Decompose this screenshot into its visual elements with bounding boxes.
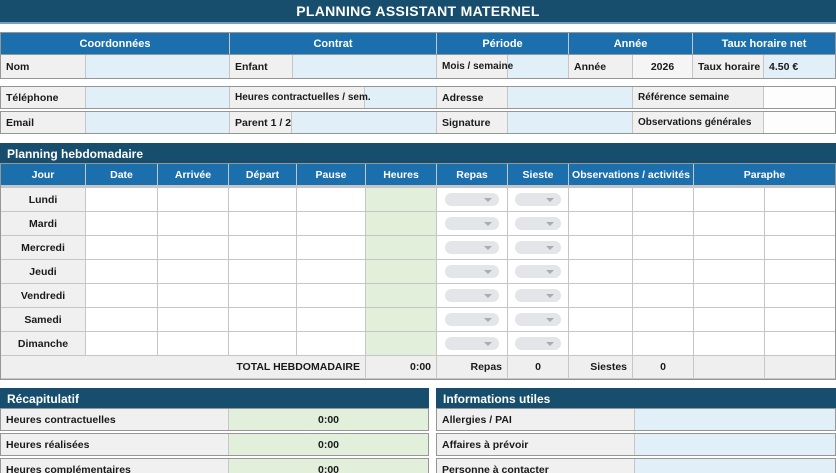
chevron-down-icon: [546, 246, 554, 250]
chevron-down-icon: [484, 342, 492, 346]
recap-row: Heures contractuelles 0:00: [0, 408, 429, 431]
sieste-dropdown[interactable]: [508, 236, 568, 259]
observation-cell-1[interactable]: [569, 260, 632, 283]
observation-cell-1[interactable]: [569, 284, 632, 307]
arrivee-cell[interactable]: [158, 260, 228, 283]
arrivee-cell[interactable]: [158, 308, 228, 331]
repas-dropdown-pill[interactable]: [445, 265, 500, 278]
chevron-down-icon: [484, 222, 492, 226]
paraphe-cell-1[interactable]: [694, 260, 764, 283]
observation-cell-2[interactable]: [633, 236, 693, 259]
signature-label: Signature: [437, 112, 507, 133]
adresse-label: Adresse: [437, 87, 507, 108]
paraphe-cell-1[interactable]: [694, 308, 764, 331]
observation-cell-2[interactable]: [633, 332, 693, 355]
observation-cell-1[interactable]: [569, 332, 632, 355]
parent-input[interactable]: [292, 112, 436, 133]
paraphe-cell-1[interactable]: [694, 212, 764, 235]
repas-dropdown[interactable]: [437, 308, 507, 331]
observation-cell-2[interactable]: [633, 188, 693, 211]
section-header-periode: Période: [437, 33, 568, 54]
allergies-input[interactable]: [635, 409, 835, 430]
date-cell[interactable]: [86, 284, 157, 307]
sieste-dropdown[interactable]: [508, 308, 568, 331]
heures-contractuelles-recap-value: 0:00: [229, 409, 428, 430]
date-cell[interactable]: [86, 332, 157, 355]
repas-dropdown-pill[interactable]: [445, 241, 500, 254]
heures-complementaires-label: Heures complémentaires: [1, 459, 228, 473]
heures-realisees-label: Heures réalisées: [1, 434, 228, 455]
paraphe-cell-2[interactable]: [765, 308, 835, 331]
depart-cell[interactable]: [229, 332, 296, 355]
recap-section-title: Récapitulatif: [7, 392, 79, 406]
arrivee-cell[interactable]: [158, 284, 228, 307]
col-header-paraphe: Paraphe: [694, 164, 835, 185]
sieste-dropdown[interactable]: [508, 260, 568, 283]
depart-cell[interactable]: [229, 212, 296, 235]
observation-cell-1[interactable]: [569, 308, 632, 331]
mois-semaine-input[interactable]: [508, 55, 568, 78]
chevron-down-icon: [484, 198, 492, 202]
email-input[interactable]: [86, 112, 229, 133]
heures-cell: [366, 308, 436, 331]
depart-cell[interactable]: [229, 308, 296, 331]
repas-dropdown-pill[interactable]: [445, 337, 500, 350]
arrivee-cell[interactable]: [158, 236, 228, 259]
date-cell[interactable]: [86, 236, 157, 259]
col-header-sieste: Sieste: [508, 164, 568, 185]
observation-cell-2[interactable]: [633, 308, 693, 331]
pause-cell[interactable]: [297, 236, 365, 259]
email-label: Email: [1, 112, 85, 133]
day-label-cell: Dimanche: [1, 332, 85, 355]
repas-dropdown[interactable]: [437, 260, 507, 283]
sieste-dropdown[interactable]: [508, 332, 568, 355]
info-row: Affaires à prévoir: [436, 433, 836, 456]
infos-section-title: Informations utiles: [443, 392, 550, 406]
col-header-heures: Heures: [366, 164, 436, 185]
date-cell[interactable]: [86, 308, 157, 331]
planning-section-title: Planning hebdomadaire: [7, 147, 143, 161]
sieste-dropdown-pill[interactable]: [515, 265, 562, 278]
repas-dropdown-pill[interactable]: [445, 289, 500, 302]
planning-table: Jour Date Arrivée Départ Pause Heures Re…: [0, 163, 836, 380]
personne-contacter-label: Personne à contacter: [437, 459, 634, 473]
arrivee-cell[interactable]: [158, 188, 228, 211]
heures-cell: [366, 332, 436, 355]
parent-label: Parent 1 / 2: [230, 112, 291, 133]
total-siestes-label: Siestes: [569, 356, 632, 378]
day-label-cell: Lundi: [1, 188, 85, 211]
infos-section-bar: Informations utiles: [436, 388, 836, 409]
recap-section: Récapitulatif Heures contractuelles 0:00…: [0, 388, 429, 473]
repas-dropdown[interactable]: [437, 188, 507, 211]
pause-cell[interactable]: [297, 212, 365, 235]
col-header-pause: Pause: [297, 164, 365, 185]
pause-cell[interactable]: [297, 260, 365, 283]
repas-dropdown[interactable]: [437, 284, 507, 307]
depart-cell[interactable]: [229, 188, 296, 211]
day-label-cell: Samedi: [1, 308, 85, 331]
affaires-label: Affaires à prévoir: [437, 434, 634, 455]
repas-dropdown[interactable]: [437, 212, 507, 235]
chevron-down-icon: [484, 294, 492, 298]
page-title: PLANNING ASSISTANT MATERNEL: [296, 3, 540, 19]
sieste-dropdown-pill[interactable]: [515, 289, 562, 302]
paraphe-cell-1[interactable]: [694, 188, 764, 211]
recap-row: Heures réalisées 0:00: [0, 433, 429, 456]
observation-cell-2[interactable]: [633, 260, 693, 283]
top-section-headers: Coordonnées Contrat Période Année Taux h…: [0, 32, 836, 55]
mois-semaine-label: Mois / semaine: [437, 55, 507, 78]
section-header-coordonnees: Coordonnées: [1, 33, 229, 54]
chevron-down-icon: [546, 270, 554, 274]
col-header-jour: Jour: [1, 164, 85, 185]
arrivee-cell[interactable]: [158, 212, 228, 235]
sieste-dropdown[interactable]: [508, 188, 568, 211]
total-empty-cell-2: [765, 356, 835, 378]
signature-input[interactable]: [508, 112, 632, 133]
heures-realisees-value: 0:00: [229, 434, 428, 455]
paraphe-cell-2[interactable]: [765, 188, 835, 211]
annee-label: Année: [569, 55, 632, 78]
depart-cell[interactable]: [229, 284, 296, 307]
email-row: Email Parent 1 / 2 Signature Observation…: [0, 111, 836, 134]
nom-label: Nom: [1, 55, 85, 78]
chevron-down-icon: [484, 318, 492, 322]
paraphe-cell-1[interactable]: [694, 284, 764, 307]
telephone-input[interactable]: [86, 87, 229, 108]
observation-cell-1[interactable]: [569, 212, 632, 235]
pause-cell[interactable]: [297, 284, 365, 307]
enfant-input[interactable]: [293, 55, 436, 78]
section-header-taux: Taux horaire net: [693, 33, 835, 54]
sieste-dropdown-pill[interactable]: [515, 241, 562, 254]
title-bar: PLANNING ASSISTANT MATERNEL: [0, 0, 836, 24]
repas-dropdown-pill[interactable]: [445, 217, 500, 230]
annee-value[interactable]: 2026: [633, 55, 692, 78]
heures-complementaires-value: 0:00: [229, 459, 428, 473]
section-header-contrat: Contrat: [230, 33, 436, 54]
observation-cell-1[interactable]: [569, 188, 632, 211]
sieste-dropdown-pill[interactable]: [515, 337, 562, 350]
sieste-dropdown[interactable]: [508, 284, 568, 307]
telephone-label: Téléphone: [1, 87, 85, 108]
info-row: Allergies / PAI: [436, 408, 836, 431]
total-repas-label: Repas: [437, 356, 507, 378]
paraphe-cell-2[interactable]: [765, 332, 835, 355]
col-header-depart: Départ: [229, 164, 296, 185]
repas-dropdown-pill[interactable]: [445, 193, 500, 206]
chevron-down-icon: [546, 198, 554, 202]
col-header-date: Date: [86, 164, 157, 185]
date-cell[interactable]: [86, 212, 157, 235]
chevron-down-icon: [546, 222, 554, 226]
heures-contractuelles-recap-label: Heures contractuelles: [1, 409, 228, 430]
depart-cell[interactable]: [229, 260, 296, 283]
reference-semaine-input[interactable]: [764, 87, 835, 108]
enfant-label: Enfant: [230, 55, 292, 78]
chevron-down-icon: [484, 246, 492, 250]
arrivee-cell[interactable]: [158, 332, 228, 355]
chevron-down-icon: [546, 318, 554, 322]
chevron-down-icon: [484, 270, 492, 274]
heures-cell: [366, 236, 436, 259]
total-heures-value: 0:00: [366, 356, 436, 378]
sieste-dropdown[interactable]: [508, 212, 568, 235]
paraphe-cell-1[interactable]: [694, 332, 764, 355]
repas-dropdown[interactable]: [437, 332, 507, 355]
day-label-cell: Jeudi: [1, 260, 85, 283]
taux-horaire-value[interactable]: 4.50 €: [764, 55, 835, 78]
planning-sheet: PLANNING ASSISTANT MATERNEL Coordonnées …: [0, 0, 836, 473]
observations-generales-label: Observations générales: [633, 112, 763, 133]
date-cell[interactable]: [86, 260, 157, 283]
total-empty-cell-1: [694, 356, 764, 378]
observations-generales-input[interactable]: [764, 112, 835, 133]
pause-cell[interactable]: [297, 332, 365, 355]
sieste-dropdown-pill[interactable]: [515, 217, 562, 230]
total-repas-value: 0: [508, 356, 568, 378]
bottom-sections: Récapitulatif Heures contractuelles 0:00…: [0, 388, 836, 473]
heures-cell: [366, 260, 436, 283]
chevron-down-icon: [546, 294, 554, 298]
heures-cell: [366, 284, 436, 307]
recap-section-bar: Récapitulatif: [0, 388, 429, 409]
sieste-dropdown-pill[interactable]: [515, 193, 562, 206]
recap-row: Heures complémentaires 0:00: [0, 458, 429, 473]
depart-cell[interactable]: [229, 236, 296, 259]
pause-cell[interactable]: [297, 188, 365, 211]
total-siestes-value: 0: [633, 356, 693, 378]
total-hebdo-label: TOTAL HEBDOMADAIRE: [1, 356, 365, 378]
heures-contractuelles-label: Heures contractuelles / sem.: [230, 87, 364, 108]
paraphe-cell-1[interactable]: [694, 236, 764, 259]
date-cell[interactable]: [86, 188, 157, 211]
identity-row: Nom Enfant Mois / semaine Année 2026 Tau…: [0, 54, 836, 79]
personne-contacter-input[interactable]: [635, 459, 835, 473]
paraphe-cell-2[interactable]: [765, 236, 835, 259]
nom-input[interactable]: [86, 55, 229, 78]
heures-contractuelles-input[interactable]: [365, 87, 436, 108]
taux-horaire-label: Taux horaire: [693, 55, 763, 78]
section-header-annee: Année: [569, 33, 692, 54]
reference-semaine-label: Référence semaine: [633, 87, 763, 108]
pause-cell[interactable]: [297, 308, 365, 331]
observation-cell-2[interactable]: [633, 284, 693, 307]
heures-cell: [366, 212, 436, 235]
chevron-down-icon: [546, 342, 554, 346]
heures-cell: [366, 188, 436, 211]
adresse-input[interactable]: [508, 87, 632, 108]
observation-cell-2[interactable]: [633, 212, 693, 235]
repas-dropdown-pill[interactable]: [445, 313, 500, 326]
contact-row: Téléphone Heures contractuelles / sem. A…: [0, 86, 836, 109]
col-header-arrivee: Arrivée: [158, 164, 228, 185]
paraphe-cell-2[interactable]: [765, 212, 835, 235]
info-row: Personne à contacter: [436, 458, 836, 473]
infos-section: Informations utiles Allergies / PAI Affa…: [436, 388, 836, 473]
sieste-dropdown-pill[interactable]: [515, 313, 562, 326]
observation-cell-1[interactable]: [569, 236, 632, 259]
paraphe-cell-2[interactable]: [765, 284, 835, 307]
day-label-cell: Mardi: [1, 212, 85, 235]
planning-section-bar: Planning hebdomadaire: [0, 143, 836, 164]
allergies-label: Allergies / PAI: [437, 409, 634, 430]
col-header-observations: Observations / activités: [569, 164, 693, 185]
paraphe-cell-2[interactable]: [765, 260, 835, 283]
day-label-cell: Mercredi: [1, 236, 85, 259]
col-header-repas: Repas: [437, 164, 507, 185]
day-label-cell: Vendredi: [1, 284, 85, 307]
affaires-input[interactable]: [635, 434, 835, 455]
repas-dropdown[interactable]: [437, 236, 507, 259]
